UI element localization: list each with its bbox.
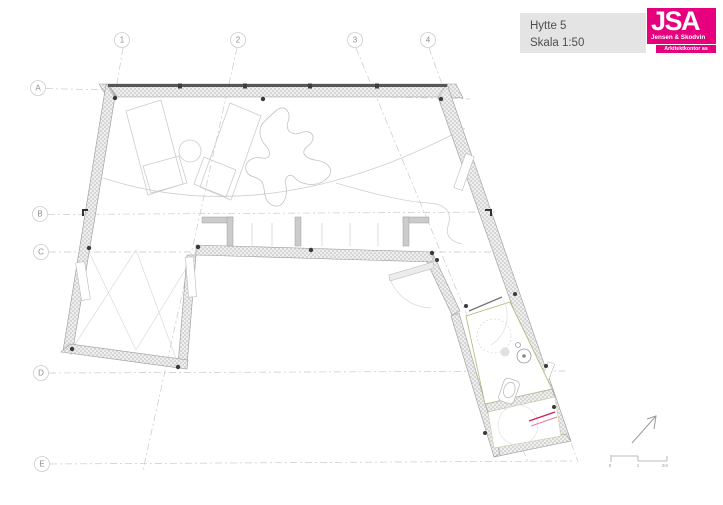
svg-text:1: 1 (120, 36, 125, 45)
terrain-contours (103, 108, 465, 244)
jsa-logo-main: JSA Jensen & Skodvin (647, 8, 716, 44)
lounge-chair-left (126, 100, 183, 195)
grid-bubble-1: 1 (115, 33, 130, 48)
wall-lower-room-south (61, 344, 188, 369)
wall-south-main (196, 245, 433, 262)
svg-text:E: E (39, 460, 44, 469)
grid-bubble-E: E (35, 457, 50, 472)
partition-stub-2 (295, 217, 301, 246)
partition-stub-1-vertical (227, 217, 233, 246)
door-swing-arc (390, 279, 431, 308)
partition-stub-3-vertical (403, 217, 409, 246)
svg-text:C: C (38, 248, 44, 257)
grid-bubble-4: 4 (421, 33, 436, 48)
svg-text:3: 3 (353, 36, 358, 45)
logo-firm-suffix: Arkitektkontor as (656, 45, 716, 53)
north-arrow-icon (632, 416, 656, 443)
floor-plan: A B C D E 1 2 (0, 0, 723, 500)
terrace-furniture (126, 100, 261, 200)
grid-bubble-3: 3 (348, 33, 363, 48)
terrain-contour-right (336, 183, 462, 244)
drawing-scale: Skala 1:50 (530, 35, 646, 52)
grid-line-E (50, 461, 573, 464)
svg-text:2: 2 (236, 36, 241, 45)
partition-mullions (252, 223, 378, 246)
wall-left (63, 84, 115, 351)
jsa-logo: JSA Jensen & Skodvin Arkitektkontor as (647, 8, 716, 53)
project-title: Hytte 5 (530, 18, 646, 35)
glass-line (108, 84, 447, 87)
title-block: Hytte 5 Skala 1:50 (520, 13, 646, 53)
logo-acronym: JSA (651, 9, 713, 34)
svg-text:4: 4 (426, 36, 431, 45)
grid-bubble-C: C (34, 245, 49, 260)
floor-drain (501, 348, 510, 357)
drawing-sheet: Hytte 5 Skala 1:50 JSA Jensen & Skodvin … (0, 0, 723, 500)
scale-bar: 0 1 2m (609, 455, 669, 468)
window-swing-triangles (74, 249, 198, 361)
svg-text:1: 1 (637, 463, 640, 468)
door-leaf (389, 262, 434, 281)
logo-firm-name: Jensen & Skodvin (651, 34, 713, 41)
facade-notches (82, 209, 492, 216)
lounge-chair-right-foot (194, 157, 236, 197)
interior-partitions (202, 217, 429, 246)
svg-text:0: 0 (609, 463, 612, 468)
grid-line-B (48, 212, 497, 215)
svg-text:B: B (37, 210, 42, 219)
grid-bubble-D: D (34, 366, 49, 381)
svg-text:A: A (35, 84, 41, 93)
svg-text:2m: 2m (662, 463, 669, 468)
grid-bubble-A: A (31, 81, 46, 96)
grid-bubble-B: B (33, 207, 48, 222)
svg-text:D: D (38, 369, 44, 378)
grid-bubble-2: 2 (231, 33, 246, 48)
round-table (179, 140, 201, 162)
main-door (389, 262, 434, 308)
